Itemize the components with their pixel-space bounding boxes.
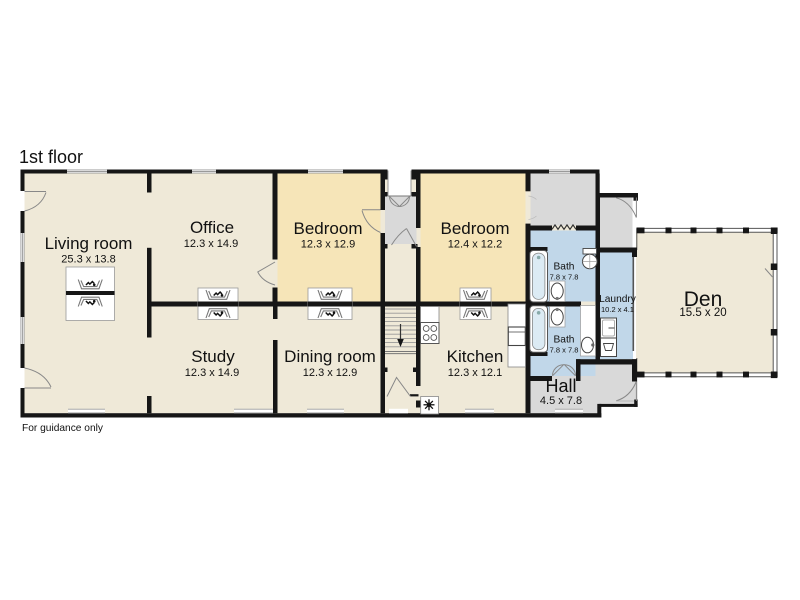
svg-text:Living room: Living room <box>45 234 133 253</box>
svg-text:12.3 x 12.1: 12.3 x 12.1 <box>448 367 502 379</box>
svg-text:Laundry: Laundry <box>599 294 637 305</box>
svg-text:1st floor: 1st floor <box>19 147 83 167</box>
svg-text:12.3 x 12.9: 12.3 x 12.9 <box>301 239 355 251</box>
svg-text:Bedroom: Bedroom <box>294 219 363 238</box>
svg-text:Dining room: Dining room <box>284 347 376 366</box>
svg-text:Bath: Bath <box>554 262 575 273</box>
svg-text:Hall: Hall <box>545 376 576 396</box>
svg-text:For guidance only: For guidance only <box>22 423 104 434</box>
svg-text:Kitchen: Kitchen <box>447 347 504 366</box>
svg-text:7.8 x 7.8: 7.8 x 7.8 <box>550 273 579 282</box>
svg-text:Bath: Bath <box>554 335 575 346</box>
svg-text:Study: Study <box>191 347 235 366</box>
svg-text:12.4 x 12.2: 12.4 x 12.2 <box>448 239 502 251</box>
svg-text:12.3 x 12.9: 12.3 x 12.9 <box>303 367 357 379</box>
svg-text:7.8 x 7.8: 7.8 x 7.8 <box>550 346 579 355</box>
svg-text:12.3 x 14.9: 12.3 x 14.9 <box>184 238 238 250</box>
svg-text:25.3 x 13.8: 25.3 x 13.8 <box>61 254 115 266</box>
svg-text:Bedroom: Bedroom <box>441 219 510 238</box>
svg-text:4.5 x 7.8: 4.5 x 7.8 <box>540 395 582 407</box>
svg-text:12.3 x 14.9: 12.3 x 14.9 <box>185 367 239 379</box>
svg-text:10.2 x 4.1: 10.2 x 4.1 <box>601 305 634 314</box>
svg-text:15.5 x 20: 15.5 x 20 <box>679 307 726 319</box>
svg-text:Office: Office <box>190 218 234 237</box>
